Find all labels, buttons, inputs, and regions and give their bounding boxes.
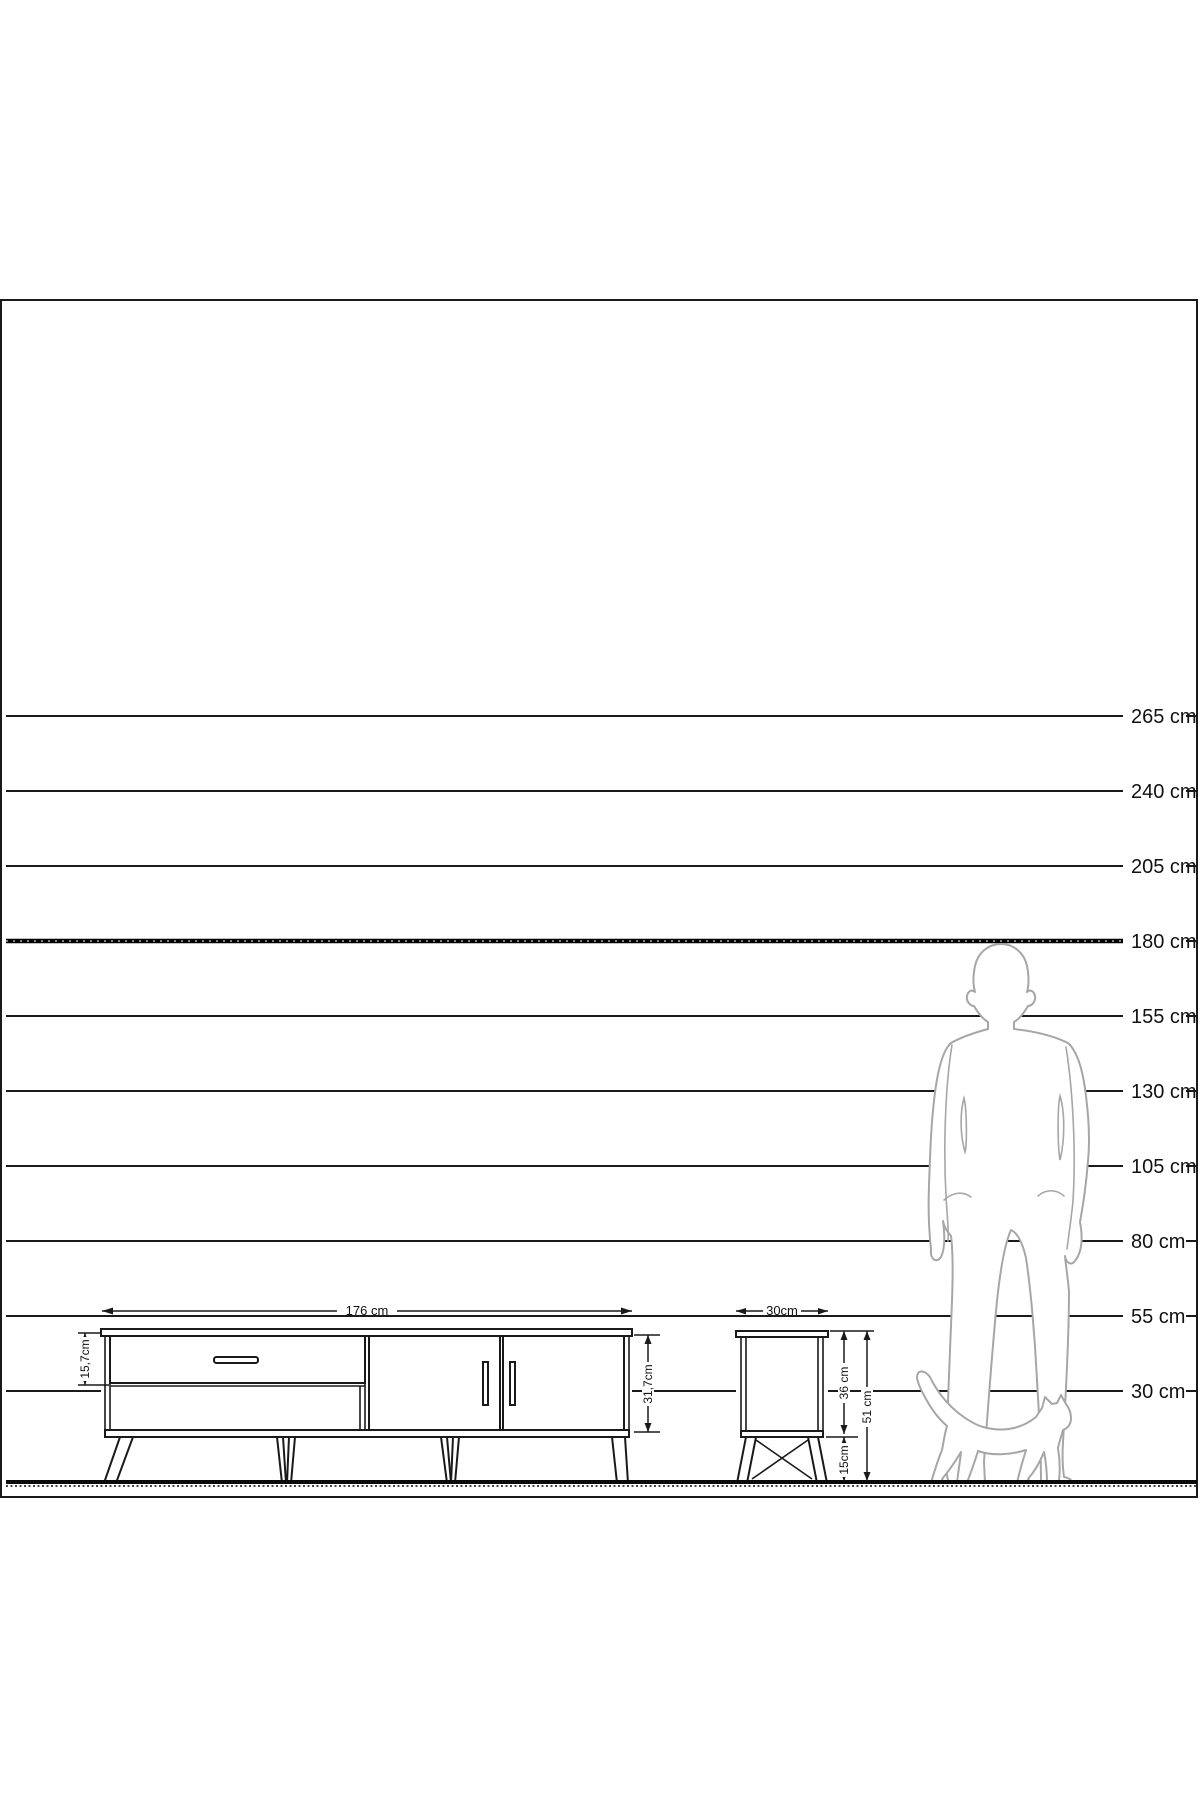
dim-table-total-height: 51 cm (860, 1331, 874, 1481)
side-table-brace-1 (756, 1440, 812, 1479)
height-label-30: 30 cm (1131, 1381, 1185, 1403)
dim-tv-carcass-height: 31,7cm (634, 1335, 660, 1432)
tv-stand-door-left (369, 1336, 500, 1430)
tv-stand-door-left-handle (483, 1362, 488, 1405)
furniture-dimension-diagram: 265 cm240 cm205 cm180 cm155 cm130 cm105 … (0, 0, 1200, 1800)
diagram-canvas: 265 cm240 cm205 cm180 cm155 cm130 cm105 … (0, 0, 1200, 1800)
tv-stand-leg-3b (451, 1437, 459, 1483)
tv-stand-leg-3a (441, 1437, 451, 1483)
side-table (736, 1331, 828, 1483)
diagram-frame (1, 300, 1197, 1497)
tv-stand-door-right (503, 1336, 624, 1430)
side-table-top (736, 1331, 828, 1337)
height-label-80: 80 cm (1131, 1231, 1185, 1253)
side-table-leg-left (737, 1437, 756, 1483)
side-table-leg-right (808, 1437, 827, 1483)
dim-table-carcass-label: 36 cm (837, 1367, 851, 1400)
tv-stand-leg-2a (277, 1437, 286, 1483)
tv-stand-leg-4 (612, 1437, 628, 1483)
dim-tv-width-label: 176 cm (346, 1303, 389, 1318)
dim-table-leg-label: 15cm (837, 1445, 851, 1474)
side-table-body-mask (736, 1331, 828, 1437)
dim-tv-carcass-label: 31,7cm (641, 1364, 655, 1403)
dim-table-width-label: 30cm (766, 1303, 798, 1318)
height-label-55: 55 cm (1131, 1306, 1185, 1328)
tv-stand-bottom (105, 1430, 629, 1437)
side-table-brace-2 (752, 1440, 808, 1479)
dim-tv-drawer-label: 15,7cm (78, 1339, 92, 1378)
tv-stand-drawer-handle (214, 1357, 258, 1363)
ground-line (6, 1482, 1197, 1486)
tv-stand-door-right-handle (510, 1362, 515, 1405)
tv-stand-leg-1 (104, 1437, 133, 1483)
tv-stand (101, 1329, 632, 1483)
dim-table-leg-height: 15cm (837, 1437, 851, 1481)
tv-stand-top (101, 1329, 632, 1336)
tv-stand-leg-2b (287, 1437, 295, 1483)
dim-table-total-label: 51 cm (860, 1391, 874, 1424)
